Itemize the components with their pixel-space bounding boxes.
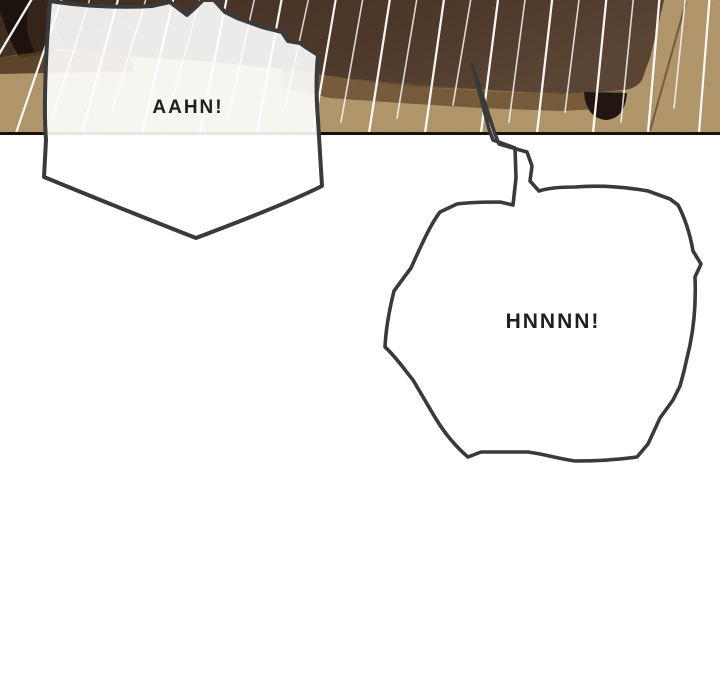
speech-bubble-aahn: AAHN! [44, 0, 322, 238]
webtoon-page: AAHN! HNNNN! [0, 0, 720, 700]
bubble-aahn-text: AAHN! [152, 97, 223, 118]
bubble-hnnnn-text: HNNNN! [506, 310, 601, 333]
comic-canvas: AAHN! HNNNN! [0, 0, 720, 700]
bubble-aahn-shape [44, 0, 322, 238]
